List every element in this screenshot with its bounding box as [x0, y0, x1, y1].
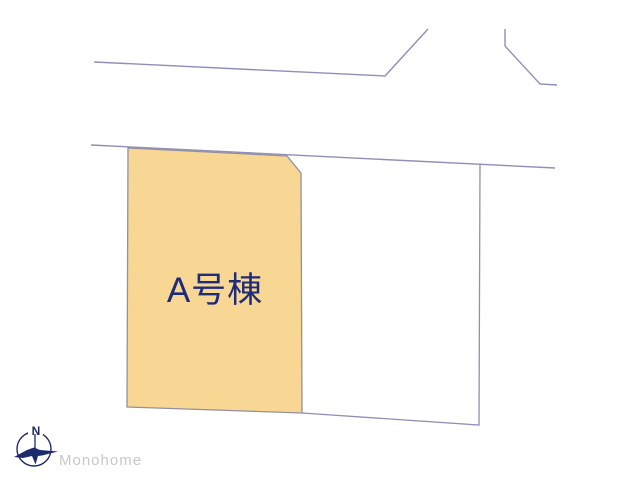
watermark-logo-text: Monohome [59, 452, 142, 469]
road-edge-upper [94, 29, 428, 76]
road-edge-upper-right [505, 29, 557, 85]
site-plan: N A号棟 Monohome [0, 0, 640, 480]
parcel-a-shape [127, 148, 302, 413]
compass-north-label: N [32, 424, 41, 438]
compass-icon: N [14, 423, 58, 466]
site-plan-drawing: N [0, 0, 640, 480]
parcel-b-outline [302, 164, 480, 425]
